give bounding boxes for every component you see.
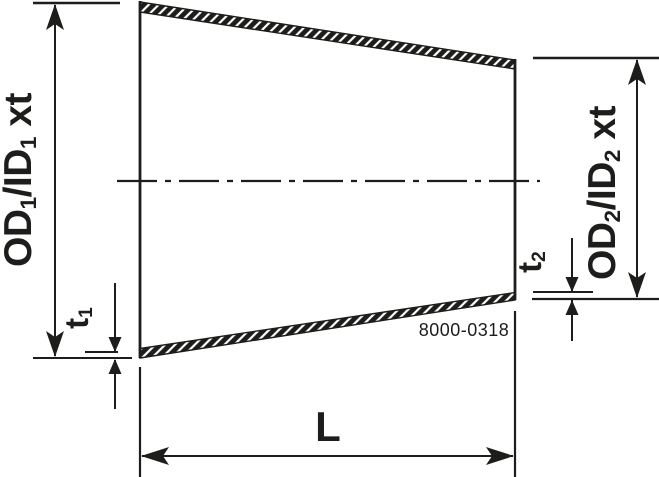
top-wall-hatch [140,2,515,69]
reducer-body [140,1,515,358]
od2-label-suffix: xt [581,106,624,150]
part-number: 8000-0318 [419,321,510,339]
t2-arrow-up-icon [566,300,579,315]
od1-label-sub2: 1 [16,137,41,149]
od2-label-sub1: 2 [600,210,625,222]
od1-id1-label: OD1/ID1 xt [0,93,41,267]
od1-label-mid: /ID [0,149,40,197]
od2-label-sub2: 2 [600,150,625,162]
technical-drawing-reducer: OD1/ID1 xt OD2/ID2 xt t1 t2 L 8000-0318 [0,0,659,477]
t2-label: t2 [513,251,549,273]
t1-dimension [85,283,122,409]
t1-arrow-down-icon [109,337,122,352]
t1-arrow-up-icon [109,359,122,374]
od2-label-mid: /ID [581,162,624,210]
od1-label-prefix: OD [0,210,40,268]
od2-label-prefix: OD [581,223,624,281]
t2-label-prefix: t [511,262,548,273]
length-label: L [315,406,341,448]
od2-id2-label: OD2/ID2 xt [583,106,625,280]
t1-label: t1 [60,307,96,329]
od1-label-suffix: xt [0,93,40,137]
t2-arrow-down-icon [566,277,579,292]
t2-label-sub: 2 [529,251,550,262]
t1-label-sub: 1 [76,307,97,318]
od1-label-sub1: 1 [16,197,41,209]
t1-label-prefix: t [58,318,95,329]
